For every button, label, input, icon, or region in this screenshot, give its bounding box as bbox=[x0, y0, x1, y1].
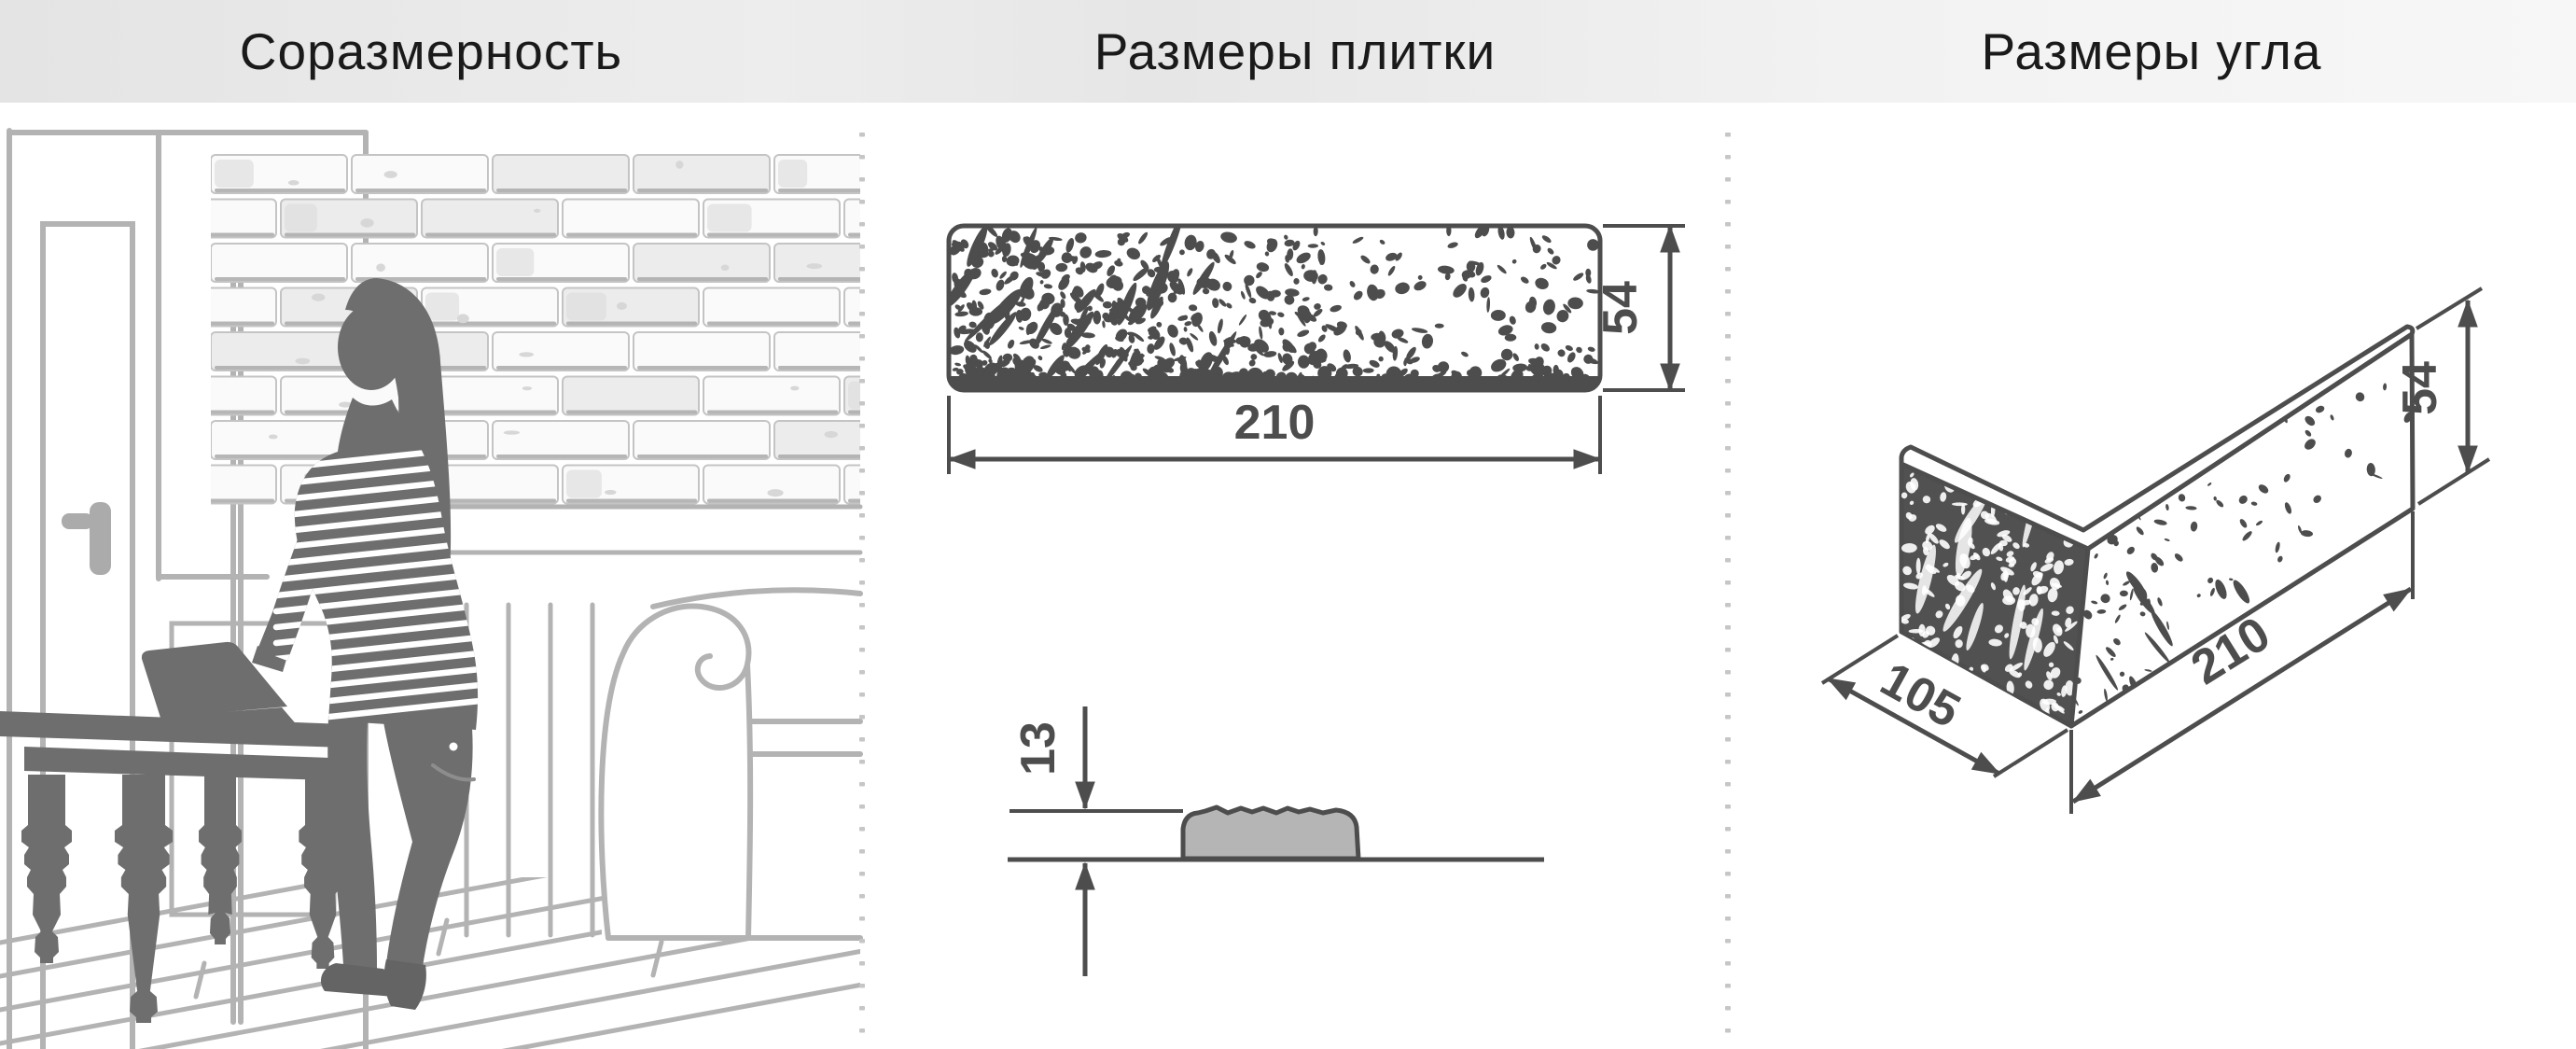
corner-depth-label: 105 bbox=[1872, 652, 1969, 739]
door-handle bbox=[62, 502, 111, 575]
brick-dimensions-infographic: Соразмерность Размеры плитки Размеры угл… bbox=[0, 0, 2576, 1049]
corner-dimensions-diagram: 105 210 54 bbox=[1822, 288, 2489, 814]
tile-thickness-label: 13 bbox=[1011, 721, 1065, 776]
header-band: Соразмерность Размеры плитки Размеры угл… bbox=[0, 0, 2576, 103]
section-title-corner-size: Размеры угла bbox=[1982, 22, 2322, 80]
tile-side-profile: 13 bbox=[1008, 706, 1544, 976]
section-title-tile-size: Размеры плитки bbox=[1094, 22, 1496, 80]
section-title-proportion: Соразмерность bbox=[240, 22, 622, 80]
tile-width-label: 210 bbox=[1234, 396, 1316, 450]
sofa bbox=[601, 590, 860, 938]
corner-height-label: 54 bbox=[2393, 361, 2447, 415]
tile-height-label: 54 bbox=[1594, 281, 1648, 335]
tile-dimensions-diagram: 210 54 13 bbox=[942, 216, 1685, 976]
infographic-canvas: Соразмерность Размеры плитки Размеры угл… bbox=[0, 0, 2576, 1049]
